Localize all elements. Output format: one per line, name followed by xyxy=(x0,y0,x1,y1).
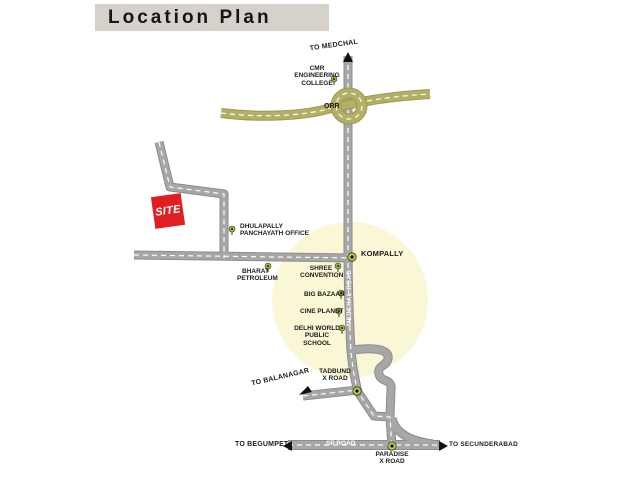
dhulapally-label: DHULAPALLY PANCHAYATH OFFICE xyxy=(240,223,309,238)
shree-convention-label: SHREE CONVENTION xyxy=(300,265,342,280)
paradise-junction-node xyxy=(388,442,396,450)
orr-road-label: ORR xyxy=(324,103,340,111)
tadbund-junction-node xyxy=(353,387,361,395)
cmr-college-label: CMR ENGINEERING COLLEGE xyxy=(287,65,347,87)
site-label: SITE xyxy=(154,203,181,218)
page-title: Location Plan xyxy=(95,7,272,29)
tadbund-x-road-label: TADBUND X ROAD xyxy=(315,368,355,383)
to-secunderabad-arrow-icon xyxy=(439,441,448,451)
big-bazaar-label: BIG BAZAAR xyxy=(304,291,345,298)
sp-road-label: SP ROAD xyxy=(326,440,356,447)
location-plan-map: Location Plan TO MEDCHAL TO BALANAGAR TO… xyxy=(0,0,640,480)
to-begumpet-label: TO BEGUMPET xyxy=(235,441,288,449)
site-marker: SITE xyxy=(151,193,185,229)
paradise-x-road-label: PARADISE X ROAD xyxy=(372,451,412,466)
bharat-petroleum-label: BHARAT PETROLEUM xyxy=(237,268,274,283)
kompally-junction-node xyxy=(348,253,356,261)
title-bar: Location Plan xyxy=(95,4,329,31)
dhulapally-pin-icon xyxy=(229,226,235,235)
to-secunderabad-label: TO SECUNDERABAD xyxy=(449,441,518,448)
cine-planet-label: CINE PLANET xyxy=(300,308,343,315)
delhi-world-school-label: DELHI WORLD PUBLIC SCHOOL xyxy=(293,325,341,347)
kompally-label: KOMPALLY xyxy=(361,250,403,258)
medchal-road-label: MEDCHAL ROAD xyxy=(347,272,354,326)
